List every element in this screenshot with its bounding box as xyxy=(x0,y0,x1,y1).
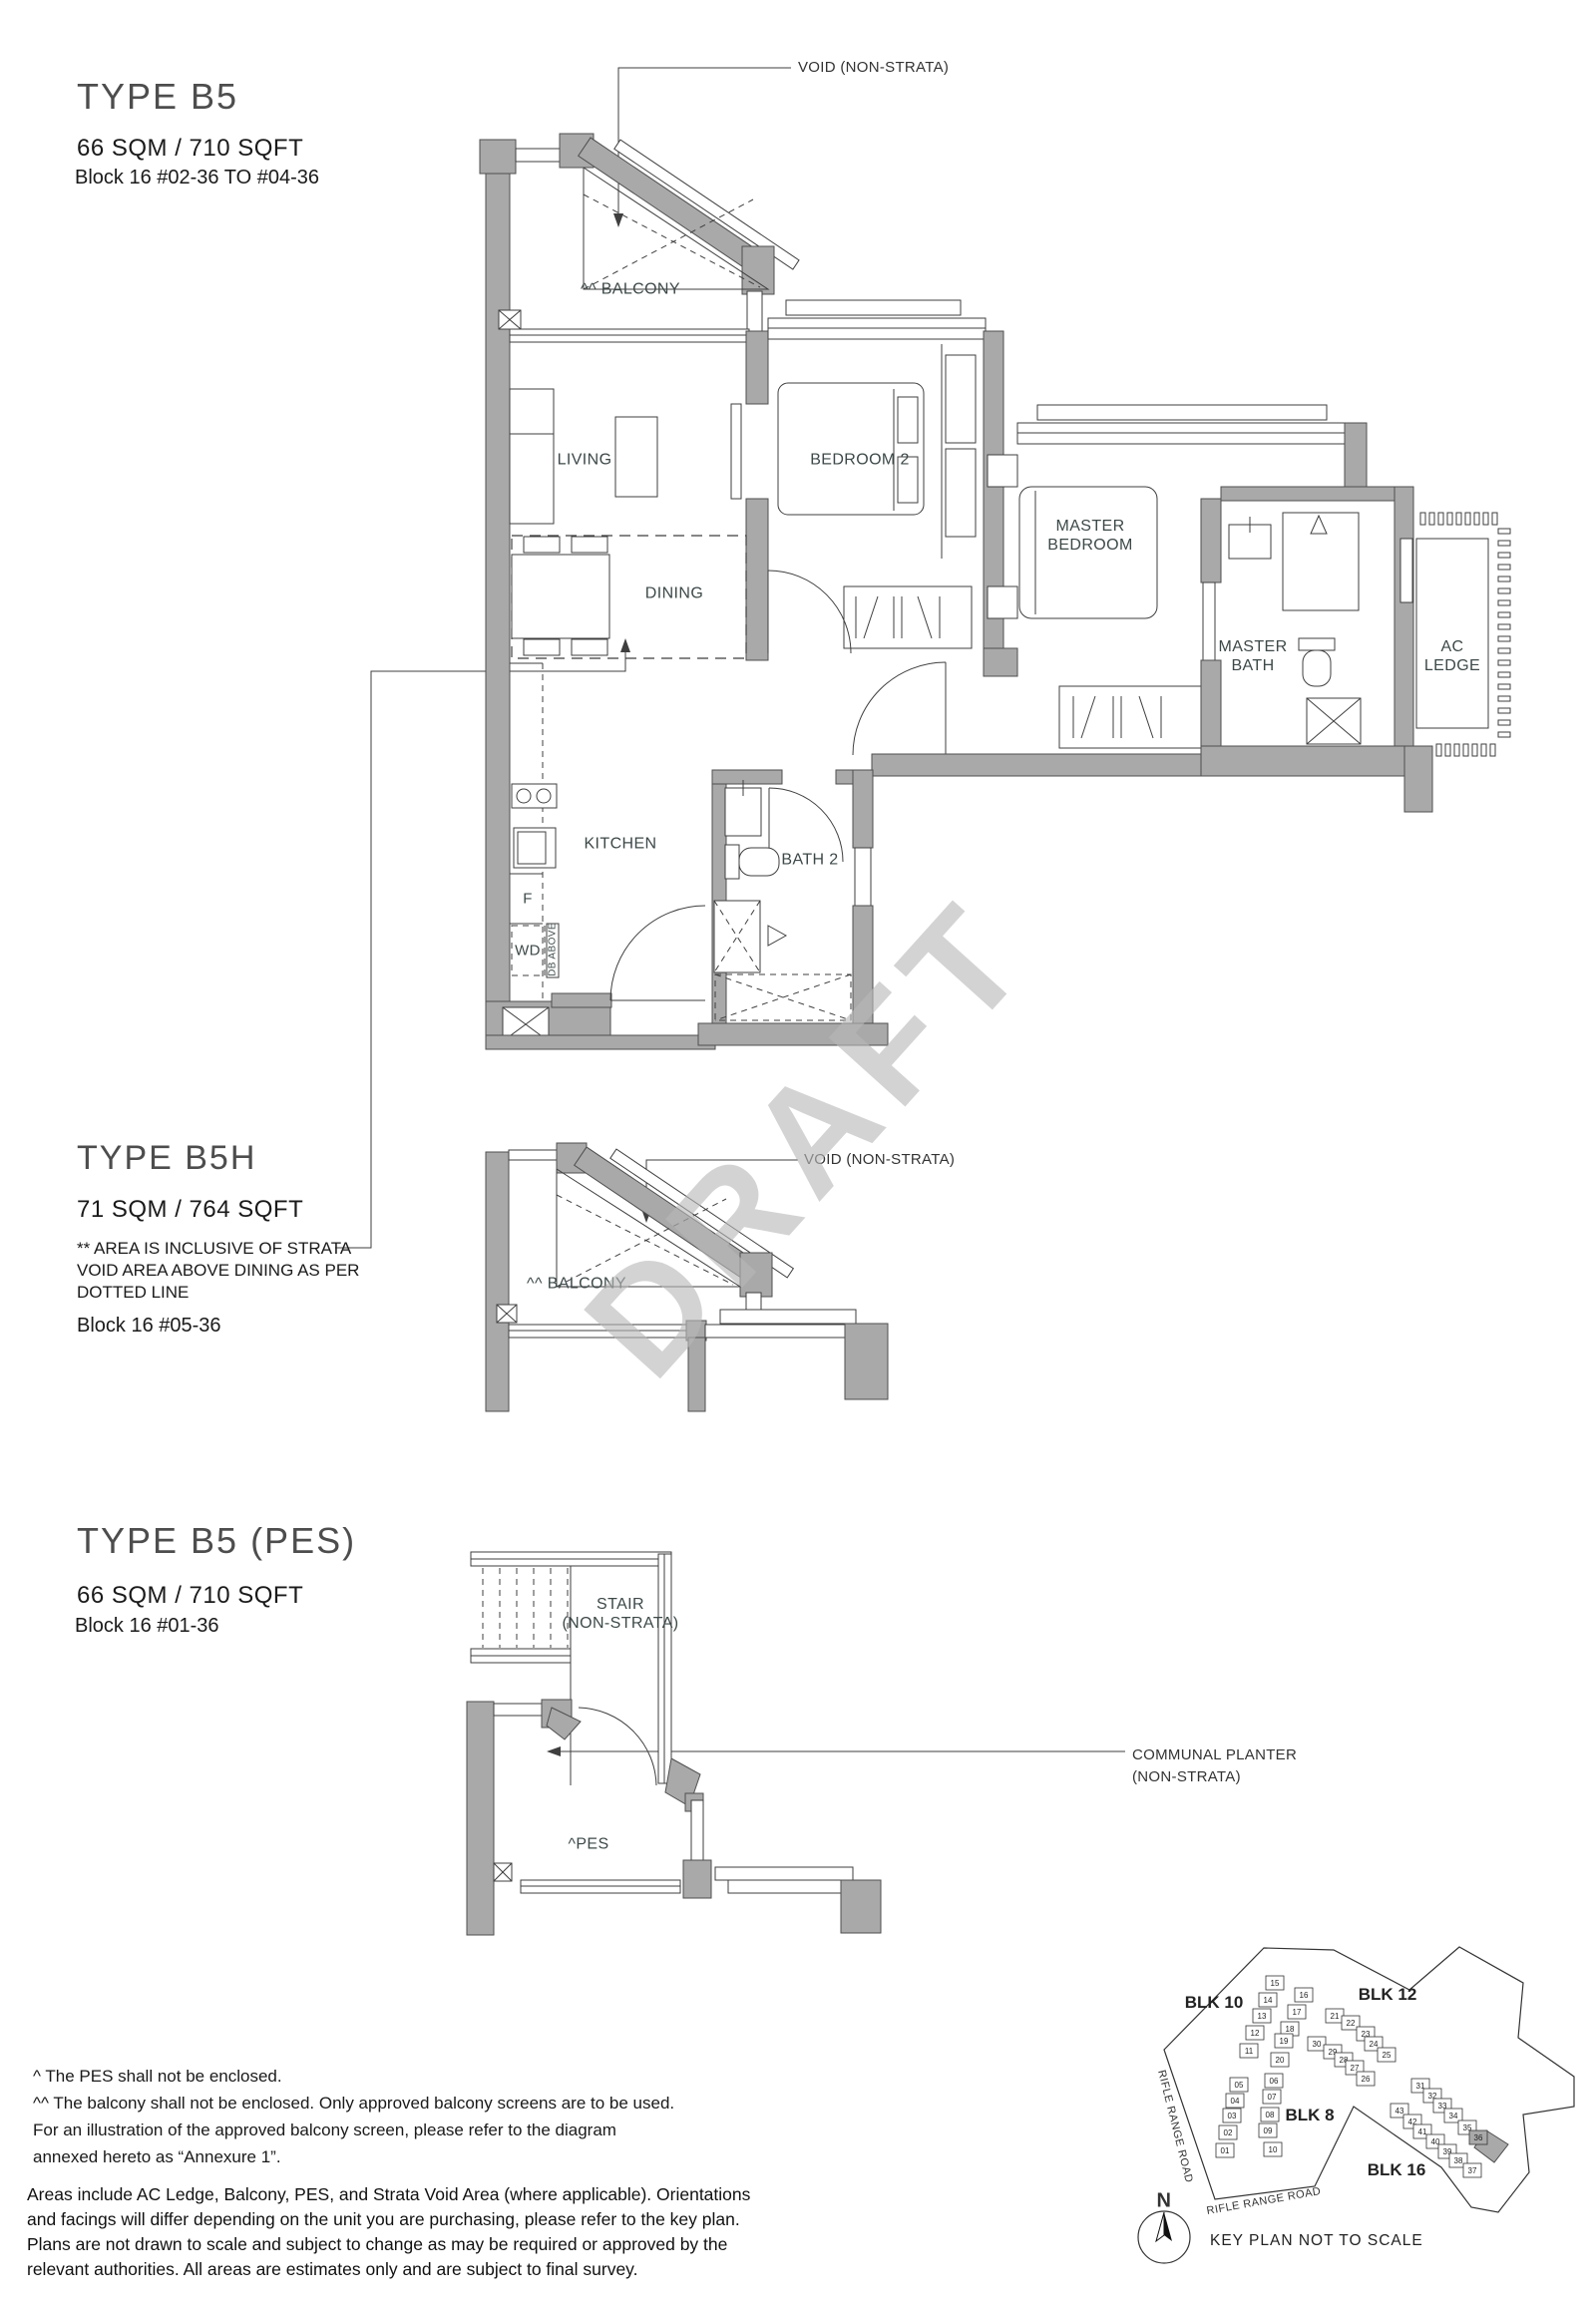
footnotes: ^ The PES shall not be enclosed. ^^ The … xyxy=(33,2063,674,2170)
kitchen-label: KITCHEN xyxy=(584,835,656,854)
keyplan-unit: 17 xyxy=(1288,2005,1306,2019)
keyplan-unit: 13 xyxy=(1253,2009,1271,2023)
disclaimer-line: Plans are not drawn to scale and subject… xyxy=(27,2232,750,2257)
b5h-balcony-label: ^^ BALCONY xyxy=(527,1275,626,1294)
svg-text:14: 14 xyxy=(1264,1996,1273,2005)
svg-text:16: 16 xyxy=(1300,1991,1309,2000)
keyplan-unit: 19 xyxy=(1275,2034,1293,2048)
plan-b5 xyxy=(335,68,1510,1248)
communal-planter-label: COMMUNAL PLANTER (NON-STRATA) xyxy=(1132,1744,1297,1788)
svg-text:38: 38 xyxy=(1454,2156,1463,2165)
svg-text:12: 12 xyxy=(1251,2029,1260,2038)
svg-text:07: 07 xyxy=(1268,2093,1277,2102)
bath2-label: BATH 2 xyxy=(781,851,838,870)
keyplan-unit: 20 xyxy=(1271,2053,1289,2067)
svg-text:15: 15 xyxy=(1271,1979,1280,1988)
svg-text:37: 37 xyxy=(1468,2166,1477,2175)
svg-text:10: 10 xyxy=(1269,2145,1278,2154)
keyplan-unit: 30 xyxy=(1308,2037,1326,2051)
disclaimer: Areas include AC Ledge, Balcony, PES, an… xyxy=(27,2182,750,2282)
b5-void-label: VOID (NON-STRATA) xyxy=(798,57,949,79)
keyplan-unit: 14 xyxy=(1259,1993,1277,2007)
dining-label: DINING xyxy=(645,584,703,603)
svg-text:24: 24 xyxy=(1370,2040,1379,2049)
footnote-line: annexed hereto as “Annexure 1”. xyxy=(33,2143,674,2170)
svg-text:25: 25 xyxy=(1383,2051,1392,2060)
keyplan-unit: 01 xyxy=(1216,2143,1234,2157)
wd-label: WD xyxy=(515,942,541,961)
keyplan-unit: 10 xyxy=(1264,2142,1282,2156)
svg-text:02: 02 xyxy=(1224,2128,1233,2137)
blk10-label: BLK 10 xyxy=(1185,1993,1244,2013)
svg-text:11: 11 xyxy=(1245,2047,1254,2056)
svg-text:09: 09 xyxy=(1264,2126,1273,2135)
keyplan-caption: KEY PLAN NOT TO SCALE xyxy=(1210,2232,1423,2250)
b5-balcony-label: ^^ BALCONY xyxy=(581,280,680,299)
b5h-note-line3: DOTTED LINE xyxy=(77,1282,359,1304)
keyplan-unit: 15 xyxy=(1266,1976,1284,1990)
b5h-note-line1: ** AREA IS INCLUSIVE OF STRATA xyxy=(77,1238,359,1260)
stair-label: STAIR (NON-STRATA) xyxy=(562,1595,678,1633)
b5h-note: ** AREA IS INCLUSIVE OF STRATA VOID AREA… xyxy=(77,1238,359,1304)
b5pes-area: 66 SQM / 710 SQFT xyxy=(77,1582,303,1610)
svg-text:01: 01 xyxy=(1221,2146,1230,2155)
svg-text:04: 04 xyxy=(1231,2097,1240,2106)
svg-text:30: 30 xyxy=(1313,2040,1322,2049)
keyplan-unit: 08 xyxy=(1261,2108,1279,2121)
keyplan-unit: 36 xyxy=(1469,2130,1487,2144)
keyplan-unit: 37 xyxy=(1463,2163,1481,2177)
keyplan-unit: 26 xyxy=(1357,2072,1375,2086)
blk16-label: BLK 16 xyxy=(1368,2160,1426,2180)
b5h-void-label: VOID (NON-STRATA) xyxy=(804,1149,955,1171)
b5h-block: Block 16 #05-36 xyxy=(77,1315,221,1338)
svg-text:18: 18 xyxy=(1286,2025,1295,2034)
svg-text:13: 13 xyxy=(1258,2012,1267,2021)
footnote-line: ^^ The balcony shall not be enclosed. On… xyxy=(33,2090,674,2117)
svg-text:26: 26 xyxy=(1362,2075,1371,2084)
master-bath-label: MASTER BATH xyxy=(1218,637,1287,675)
b5-block: Block 16 #02-36 TO #04-36 xyxy=(75,167,319,190)
compass-north-label: N xyxy=(1157,2190,1172,2213)
blk8-label: BLK 8 xyxy=(1285,2106,1334,2125)
b5h-title: TYPE B5H xyxy=(77,1139,256,1178)
living-label: LIVING xyxy=(558,451,612,470)
svg-text:17: 17 xyxy=(1293,2008,1302,2017)
footnote-line: For an illustration of the approved balc… xyxy=(33,2117,674,2143)
svg-text:21: 21 xyxy=(1331,2012,1340,2021)
keyplan-unit: 04 xyxy=(1226,2094,1244,2108)
keyplan-unit: 02 xyxy=(1219,2125,1237,2139)
keyplan-unit: 11 xyxy=(1240,2044,1258,2058)
keyplan-unit: 06 xyxy=(1265,2074,1283,2088)
svg-text:19: 19 xyxy=(1280,2037,1289,2046)
disclaimer-line: and facings will differ depending on the… xyxy=(27,2207,750,2232)
fridge-label: F xyxy=(523,890,533,909)
keyplan-unit: 03 xyxy=(1223,2109,1241,2122)
svg-text:03: 03 xyxy=(1228,2112,1237,2120)
keyplan-unit: 12 xyxy=(1246,2026,1264,2040)
pes-label: ^PES xyxy=(568,1835,608,1854)
disclaimer-line: relevant authorities. All areas are esti… xyxy=(27,2257,750,2282)
footnote-line: ^ The PES shall not be enclosed. xyxy=(33,2063,674,2090)
floorplan-page: .wall{fill:#a9a9a9;stroke:#4f4f4f;stroke… xyxy=(0,0,1596,2313)
svg-text:06: 06 xyxy=(1270,2077,1279,2086)
b5-title: TYPE B5 xyxy=(77,76,238,118)
master-bedroom-label: MASTER BEDROOM xyxy=(1047,517,1132,555)
blk12-label: BLK 12 xyxy=(1359,1985,1417,2005)
b5-area: 66 SQM / 710 SQFT xyxy=(77,135,303,163)
keyplan-unit: 16 xyxy=(1295,1988,1313,2002)
svg-text:34: 34 xyxy=(1449,2112,1458,2120)
keyplan-unit: 25 xyxy=(1378,2048,1396,2062)
b5pes-block: Block 16 #01-36 xyxy=(75,1615,219,1638)
disclaimer-line: Areas include AC Ledge, Balcony, PES, an… xyxy=(27,2182,750,2207)
svg-text:41: 41 xyxy=(1418,2127,1427,2136)
db-above-label: DB ABOVE xyxy=(544,923,563,976)
svg-text:08: 08 xyxy=(1266,2111,1275,2120)
svg-text:05: 05 xyxy=(1235,2081,1244,2090)
b5h-area: 71 SQM / 764 SQFT xyxy=(77,1196,303,1224)
bedroom2-label: BEDROOM 2 xyxy=(810,451,910,470)
svg-text:22: 22 xyxy=(1347,2019,1356,2028)
svg-text:43: 43 xyxy=(1396,2107,1404,2116)
keyplan-unit: 09 xyxy=(1259,2123,1277,2137)
ac-ledge-label: AC LEDGE xyxy=(1424,637,1480,675)
svg-text:20: 20 xyxy=(1276,2056,1285,2065)
keyplan-unit: 05 xyxy=(1230,2078,1248,2092)
keyplan-unit: 21 xyxy=(1326,2009,1344,2023)
svg-text:36: 36 xyxy=(1474,2133,1483,2142)
b5h-note-line2: VOID AREA ABOVE DINING AS PER xyxy=(77,1260,359,1282)
plan-b5h xyxy=(486,1135,888,1411)
keyplan-unit: 07 xyxy=(1263,2090,1281,2104)
b5pes-title: TYPE B5 (PES) xyxy=(77,1520,356,1562)
